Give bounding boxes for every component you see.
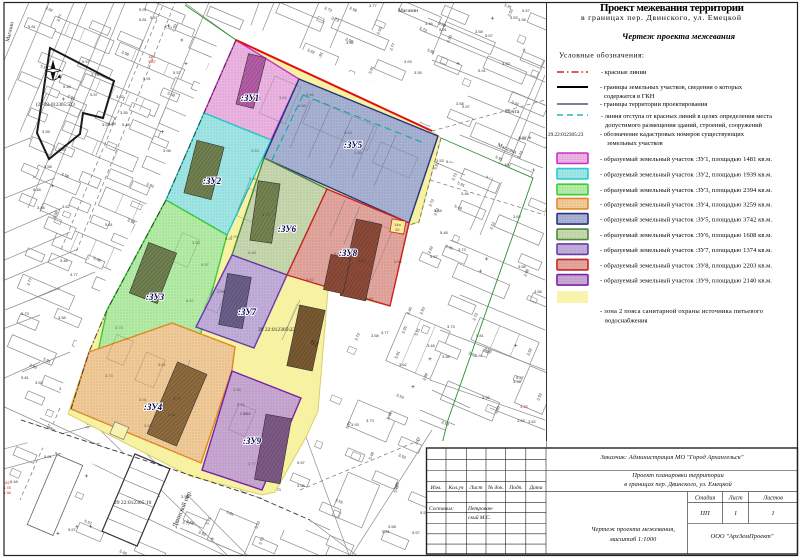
svg-text:Подп.: Подп. xyxy=(508,484,523,491)
svg-text:3.58: 3.58 xyxy=(44,164,53,169)
svg-text:29 22:012305:23: 29 22:012305:23 xyxy=(258,327,296,333)
svg-text:- образуемый земельный участок: - образуемый земельный участок :ЗУ8, пло… xyxy=(600,262,772,269)
svg-text:3.62: 3.62 xyxy=(399,362,408,367)
svg-text:3.62: 3.62 xyxy=(528,419,537,424)
svg-text:29 22:012305:10: 29 22:012305:10 xyxy=(114,500,152,506)
svg-text:- обозначение кадастровых номе: - обозначение кадастровых номеров сущест… xyxy=(600,131,745,138)
svg-text:3.55: 3.55 xyxy=(414,70,423,75)
svg-text:№ док.: № док. xyxy=(487,484,504,491)
svg-text:5.48: 5.48 xyxy=(10,479,19,484)
svg-text:3.77: 3.77 xyxy=(248,461,257,466)
svg-text:Лист: Лист xyxy=(469,485,483,491)
svg-text:(29-22-012305:513: (29-22-012305:513 xyxy=(36,103,75,108)
svg-text:5.57: 5.57 xyxy=(306,277,315,282)
svg-text:- образуемый земельный участок: - образуемый земельный участок :ЗУ1, пло… xyxy=(600,156,772,163)
svg-text:3.46: 3.46 xyxy=(425,21,434,26)
svg-text:3.53: 3.53 xyxy=(436,158,445,163)
svg-text:- образуемый земельный участок: - образуемый земельный участок :ЗУ9, пло… xyxy=(600,278,772,285)
svg-text:5.57: 5.57 xyxy=(186,298,195,303)
svg-text:- зона 2 пояса санитарной охра: - зона 2 пояса санитарной охраны источни… xyxy=(600,308,763,315)
svg-text:3.55: 3.55 xyxy=(120,110,129,115)
svg-text:3.58: 3.58 xyxy=(518,264,527,269)
svg-text:3.87: 3.87 xyxy=(148,59,157,64)
svg-text:- образуемый земельный участок: - образуемый земельный участок :ЗУ6, пло… xyxy=(600,232,772,239)
svg-text:3.25: 3.25 xyxy=(520,404,529,409)
svg-text:5.57: 5.57 xyxy=(412,530,421,535)
svg-text:5.57: 5.57 xyxy=(522,8,531,13)
svg-text:Кол.уч: Кол.уч xyxy=(448,485,464,491)
svg-text:3.53: 3.53 xyxy=(502,61,511,66)
svg-text:Чертеж проекта межевания: Чертеж проекта межевания xyxy=(622,31,736,41)
svg-text:допустимого размещения зданий,: допустимого размещения зданий, строений,… xyxy=(605,122,763,129)
svg-text:3.73: 3.73 xyxy=(105,373,114,378)
svg-text:3.53: 3.53 xyxy=(102,122,111,127)
svg-text:3.53: 3.53 xyxy=(517,418,526,423)
svg-text:3.55: 3.55 xyxy=(42,129,51,134)
svg-text:Дата: Дата xyxy=(528,485,542,491)
svg-text:- границы территории проектиро: - границы территории проектирования xyxy=(600,101,707,108)
svg-text:3.46: 3.46 xyxy=(37,205,46,210)
svg-text:5.48: 5.48 xyxy=(248,250,257,255)
svg-text:3.55: 3.55 xyxy=(354,150,363,155)
svg-text:Магазин: Магазин xyxy=(398,8,418,14)
svg-text:5.48: 5.48 xyxy=(365,296,374,301)
svg-text:3.77: 3.77 xyxy=(70,272,79,277)
svg-text:Проект планировки территории: Проект планировки территории xyxy=(631,472,724,479)
svg-text:Стадия: Стадия xyxy=(695,495,716,502)
svg-text:5.57: 5.57 xyxy=(173,70,182,75)
svg-text:3.58: 3.58 xyxy=(534,289,543,294)
svg-text:Листов: Листов xyxy=(762,496,783,502)
svg-text:3.53: 3.53 xyxy=(192,240,201,245)
svg-text:- образуемый земельный участок: - образуемый земельный участок :ЗУ4, пло… xyxy=(600,201,772,208)
svg-text:5.81: 5.81 xyxy=(158,362,167,367)
svg-text:ООО "АрхЗемПроект": ООО "АрхЗемПроект" xyxy=(711,533,774,540)
svg-text:5.48: 5.48 xyxy=(240,411,249,416)
svg-text:5.81: 5.81 xyxy=(382,529,391,534)
svg-text:3.73: 3.73 xyxy=(115,325,124,330)
svg-text:3.55: 3.55 xyxy=(233,387,242,392)
svg-text:3.58: 3.58 xyxy=(475,29,484,34)
svg-text:3.62: 3.62 xyxy=(116,94,125,99)
svg-text:- границы земельных участков,: - границы земельных участков, сведения о… xyxy=(600,84,743,91)
svg-text:3.58: 3.58 xyxy=(297,483,306,488)
svg-text:водоснабжения: водоснабжения xyxy=(605,318,647,325)
svg-text::ЗУ9: :ЗУ9 xyxy=(243,436,262,446)
svg-text:20: 20 xyxy=(395,227,400,232)
svg-text:3.73: 3.73 xyxy=(458,247,467,252)
svg-text:5.81: 5.81 xyxy=(249,176,258,181)
svg-text::ЗУ4: :ЗУ4 xyxy=(144,402,163,412)
svg-text:5.57: 5.57 xyxy=(90,92,99,97)
svg-text:5.57: 5.57 xyxy=(201,262,210,267)
svg-text:3.73: 3.73 xyxy=(366,418,375,423)
svg-text:5.81: 5.81 xyxy=(21,375,30,380)
svg-text:Петрован-: Петрован- xyxy=(467,506,494,512)
svg-text:3.93: 3.93 xyxy=(404,59,413,64)
svg-text::ЗУ3: :ЗУ3 xyxy=(146,292,165,302)
svg-text:ПП: ПП xyxy=(699,510,711,517)
svg-text:3.62: 3.62 xyxy=(144,423,153,428)
svg-text:5.91: 5.91 xyxy=(478,68,487,73)
svg-text:5.81: 5.81 xyxy=(139,17,148,22)
svg-text:- образуемый земельный участок: - образуемый земельный участок :ЗУ7, пло… xyxy=(600,247,772,254)
svg-text:5.57: 5.57 xyxy=(82,59,91,64)
svg-text:5.57: 5.57 xyxy=(519,135,528,140)
svg-text:3.58: 3.58 xyxy=(58,315,67,320)
svg-text:в границах пер. Двинского, ул.: в границах пер. Двинского, ул. Емецкой xyxy=(581,13,741,22)
svg-text:3.93: 3.93 xyxy=(482,395,491,400)
svg-text:5.48: 5.48 xyxy=(440,230,449,235)
svg-text:3.58: 3.58 xyxy=(442,354,451,359)
svg-text:масштаб 1:1000: масштаб 1:1000 xyxy=(609,536,657,543)
svg-text:3.73: 3.73 xyxy=(21,311,30,316)
svg-text:5.81: 5.81 xyxy=(225,236,234,241)
svg-text:Условные обозначения:: Условные обозначения: xyxy=(559,51,644,60)
svg-text:3.62: 3.62 xyxy=(279,95,288,100)
svg-text:5.57: 5.57 xyxy=(297,460,306,465)
svg-text:Чертеж проекта межевания,: Чертеж проекта межевания, xyxy=(591,526,675,533)
svg-text:3.46: 3.46 xyxy=(60,258,69,263)
svg-text:Составил:: Составил: xyxy=(429,506,454,512)
svg-text::ЗУ1: :ЗУ1 xyxy=(241,93,259,103)
svg-text:- образуемый земельный участок: - образуемый земельный участок :ЗУ5, пло… xyxy=(600,217,772,224)
svg-text:5.57: 5.57 xyxy=(150,15,159,20)
svg-text:5.91: 5.91 xyxy=(143,76,152,81)
svg-text:3.77: 3.77 xyxy=(173,396,182,401)
svg-text:Заказчик: Администрация МО "Го: Заказчик: Администрация МО "Город Арханг… xyxy=(600,454,743,461)
svg-text:- линия отступа от красных лин: - линия отступа от красных линий в целях… xyxy=(601,113,772,120)
svg-text:5.57: 5.57 xyxy=(485,33,494,38)
svg-text:5.81: 5.81 xyxy=(358,258,367,263)
svg-text:3.77: 3.77 xyxy=(262,212,271,217)
svg-text:5.48: 5.48 xyxy=(33,187,42,192)
svg-text:3.73: 3.73 xyxy=(447,324,456,329)
svg-text:3.53: 3.53 xyxy=(35,380,44,385)
svg-text:5.91: 5.91 xyxy=(168,412,177,417)
svg-text:1: 1 xyxy=(734,510,737,517)
svg-text:5.48: 5.48 xyxy=(122,122,131,127)
svg-text::ЗУ2: :ЗУ2 xyxy=(203,176,222,186)
svg-text:5.48: 5.48 xyxy=(63,84,72,89)
svg-text:5.91: 5.91 xyxy=(44,454,53,459)
svg-text:3.93: 3.93 xyxy=(351,422,360,427)
svg-text:3.77: 3.77 xyxy=(369,3,378,8)
svg-text:3.58: 3.58 xyxy=(394,259,403,264)
svg-text:5.57: 5.57 xyxy=(68,527,77,532)
svg-text:5.57: 5.57 xyxy=(430,254,439,259)
svg-text:3.58: 3.58 xyxy=(298,103,307,108)
svg-text:5.91: 5.91 xyxy=(139,7,148,12)
svg-text:29.22:012305:23: 29.22:012305:23 xyxy=(548,132,584,138)
svg-text:3.58: 3.58 xyxy=(456,101,465,106)
svg-text:5.48: 5.48 xyxy=(434,208,443,213)
svg-text:3.62: 3.62 xyxy=(62,204,71,209)
svg-text:- красные линии: - красные линии xyxy=(601,69,647,76)
svg-text:3.53: 3.53 xyxy=(251,148,260,153)
svg-text:5.81: 5.81 xyxy=(28,24,37,29)
svg-text:3.46: 3.46 xyxy=(461,191,470,196)
svg-text:Лист: Лист xyxy=(728,496,744,502)
svg-text:в границах пер. Двинского, ул.: в границах пер. Двинского, ул. Емецкой xyxy=(624,481,732,488)
svg-text:3.77: 3.77 xyxy=(381,330,390,335)
svg-text:3.53: 3.53 xyxy=(344,130,353,135)
svg-text:земельных участков: земельных участков xyxy=(607,140,663,147)
svg-text:5.91: 5.91 xyxy=(237,402,246,407)
svg-text:3.98: 3.98 xyxy=(217,289,226,294)
svg-text:- образуемый земельный участок: - образуемый земельный участок :ЗУ3, пло… xyxy=(600,187,772,194)
svg-text::ЗУ5: :ЗУ5 xyxy=(344,140,363,150)
svg-text:3.46: 3.46 xyxy=(427,343,436,348)
svg-text:Изм.: Изм. xyxy=(430,485,442,491)
svg-text:- образуемый земельный участок: - образуемый земельный участок :ЗУ2, пло… xyxy=(600,172,772,179)
svg-text:5.81: 5.81 xyxy=(105,222,114,227)
svg-text::ЗУ8: :ЗУ8 xyxy=(339,248,358,258)
svg-text:5.91: 5.91 xyxy=(439,27,448,32)
svg-text::ЗУ7: :ЗУ7 xyxy=(238,307,257,317)
svg-text:Почта: Почта xyxy=(505,109,520,115)
svg-text::ЗУ6: :ЗУ6 xyxy=(278,224,297,234)
svg-text:3.58: 3.58 xyxy=(371,333,380,338)
svg-text:ский М.С.: ский М.С. xyxy=(468,514,491,521)
svg-text:3.98: 3.98 xyxy=(518,17,527,22)
svg-text:содержатся в ГКН: содержатся в ГКН xyxy=(604,93,655,100)
svg-text:1: 1 xyxy=(771,510,774,517)
